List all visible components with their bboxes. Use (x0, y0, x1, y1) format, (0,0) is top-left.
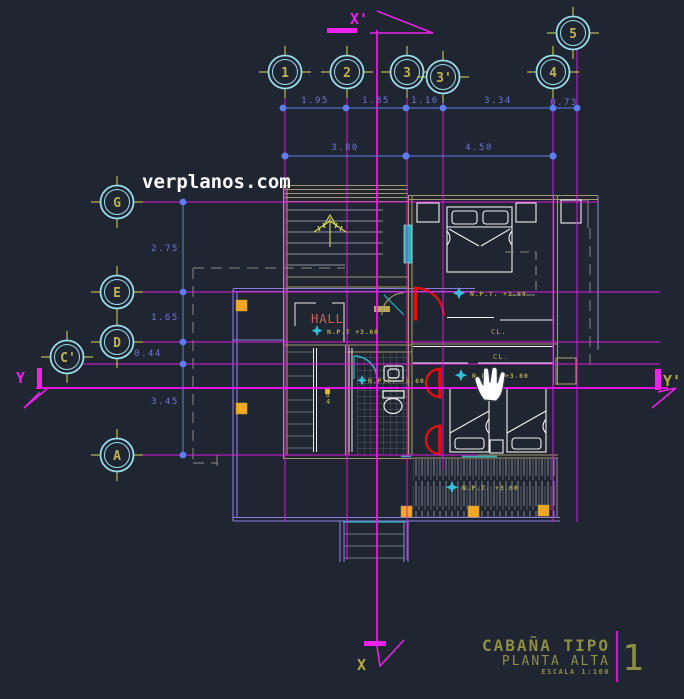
dim-value: 1.85 (362, 96, 390, 106)
grid-bubble-2: 2 (321, 46, 373, 98)
sheet-number: 1 (622, 638, 644, 679)
dim-value: 0.44 (134, 349, 162, 359)
grid-bubble-1: 1 (259, 46, 311, 98)
column (538, 505, 549, 516)
grid-bubble-3: 3 (381, 46, 433, 98)
grid-bubble-a: A (91, 429, 143, 481)
drawing-subtitle: PLANTA ALTA (502, 654, 610, 669)
door-arc (426, 369, 440, 397)
grid-bubble-c: C' (41, 331, 93, 383)
bubble-label: 1 (281, 66, 289, 81)
dim-value: 3.80 (331, 143, 359, 153)
stair-direction-arrow-icon (314, 215, 346, 247)
axis-label: Y (16, 369, 25, 387)
dim-value: 3.45 (151, 397, 179, 407)
pillow (452, 211, 477, 224)
bedroom-1 (413, 200, 581, 342)
drawing-title: CABAÑA TIPO (482, 636, 610, 655)
grid-bubble-d: D (91, 316, 143, 368)
axis-label: Y' (663, 372, 681, 390)
closet-label: CL. (491, 328, 507, 336)
shelf-box (561, 200, 581, 223)
hall-label: HALL (311, 312, 344, 326)
pillow (455, 438, 484, 449)
npt-label: N.P.T. +3.60 (470, 290, 527, 298)
axis-label: X' (350, 10, 368, 28)
title-block: CABAÑA TIPO PLANTA ALTA ESCALA 1:100 1 (482, 631, 644, 682)
pillow (512, 438, 541, 449)
shelf-box (417, 203, 439, 222)
column (236, 403, 247, 414)
bubble-label: 5 (569, 27, 577, 42)
axis-marker-x-top: X' (327, 10, 433, 33)
watermark: verplanos.com (142, 171, 291, 193)
dim-value: 4.50 (465, 143, 493, 153)
grid-bubbles: 1 2 3 3' 4 5 (41, 7, 599, 481)
balcony-edge-line (560, 200, 588, 228)
double-bed (447, 207, 512, 272)
axis-marker-x-bottom: X (357, 640, 404, 674)
dim-value: 1.95 (301, 96, 329, 106)
closet-dashed (505, 252, 536, 295)
stair-treads (287, 210, 383, 265)
bubble-label: 4 (549, 66, 557, 81)
cad-canvas: 4 (0, 0, 684, 699)
grid-lines (82, 48, 660, 560)
closet-label: CL. (493, 353, 509, 361)
bubble-label: 3' (436, 71, 452, 86)
single-bed (507, 388, 546, 452)
stair-ref-letter: B (326, 392, 330, 399)
npt-label: N.P.T. +3.60 (462, 484, 519, 492)
bubble-label: A (113, 449, 121, 464)
dim-value: 3.34 (484, 96, 512, 106)
dim-value: 1.16 (411, 96, 439, 106)
dim-value: 2.75 (151, 244, 179, 254)
column (236, 300, 247, 311)
shelf-box (516, 203, 536, 222)
npt-label: N.P.T +3.60 (327, 328, 379, 336)
window (404, 225, 412, 263)
pillow (483, 211, 508, 224)
npt-label: N.P.T. +3.60 (368, 377, 425, 385)
door-arc (426, 426, 440, 454)
stair-ref-number: 4 (326, 398, 330, 406)
bubble-label: G (113, 196, 121, 211)
bubble-label: D (113, 336, 121, 351)
floor-plan-drawing: 4 (0, 0, 684, 699)
dim-value: 1.65 (151, 313, 179, 323)
exterior-stairs-treads (343, 522, 406, 558)
grid-bubble-5: 5 (547, 7, 599, 59)
bedroom-2 (413, 347, 553, 454)
grid-bubble-e: E (91, 266, 143, 318)
drawing-scale: ESCALA 1:100 (541, 668, 610, 676)
bubble-label: C' (60, 351, 76, 366)
bubble-label: 3 (403, 66, 411, 81)
axis-marker-y-right: Y' (652, 369, 681, 408)
bathroom (357, 354, 410, 454)
night-table (490, 440, 503, 453)
grid-bubble-g: G (91, 176, 143, 228)
bubble-label: E (113, 286, 121, 301)
grid-bubble-4: 4 (527, 46, 579, 98)
column (468, 506, 479, 517)
axis-label: X (357, 656, 366, 674)
dim-value: 0.73 (550, 98, 578, 108)
bubble-label: 2 (343, 66, 351, 81)
